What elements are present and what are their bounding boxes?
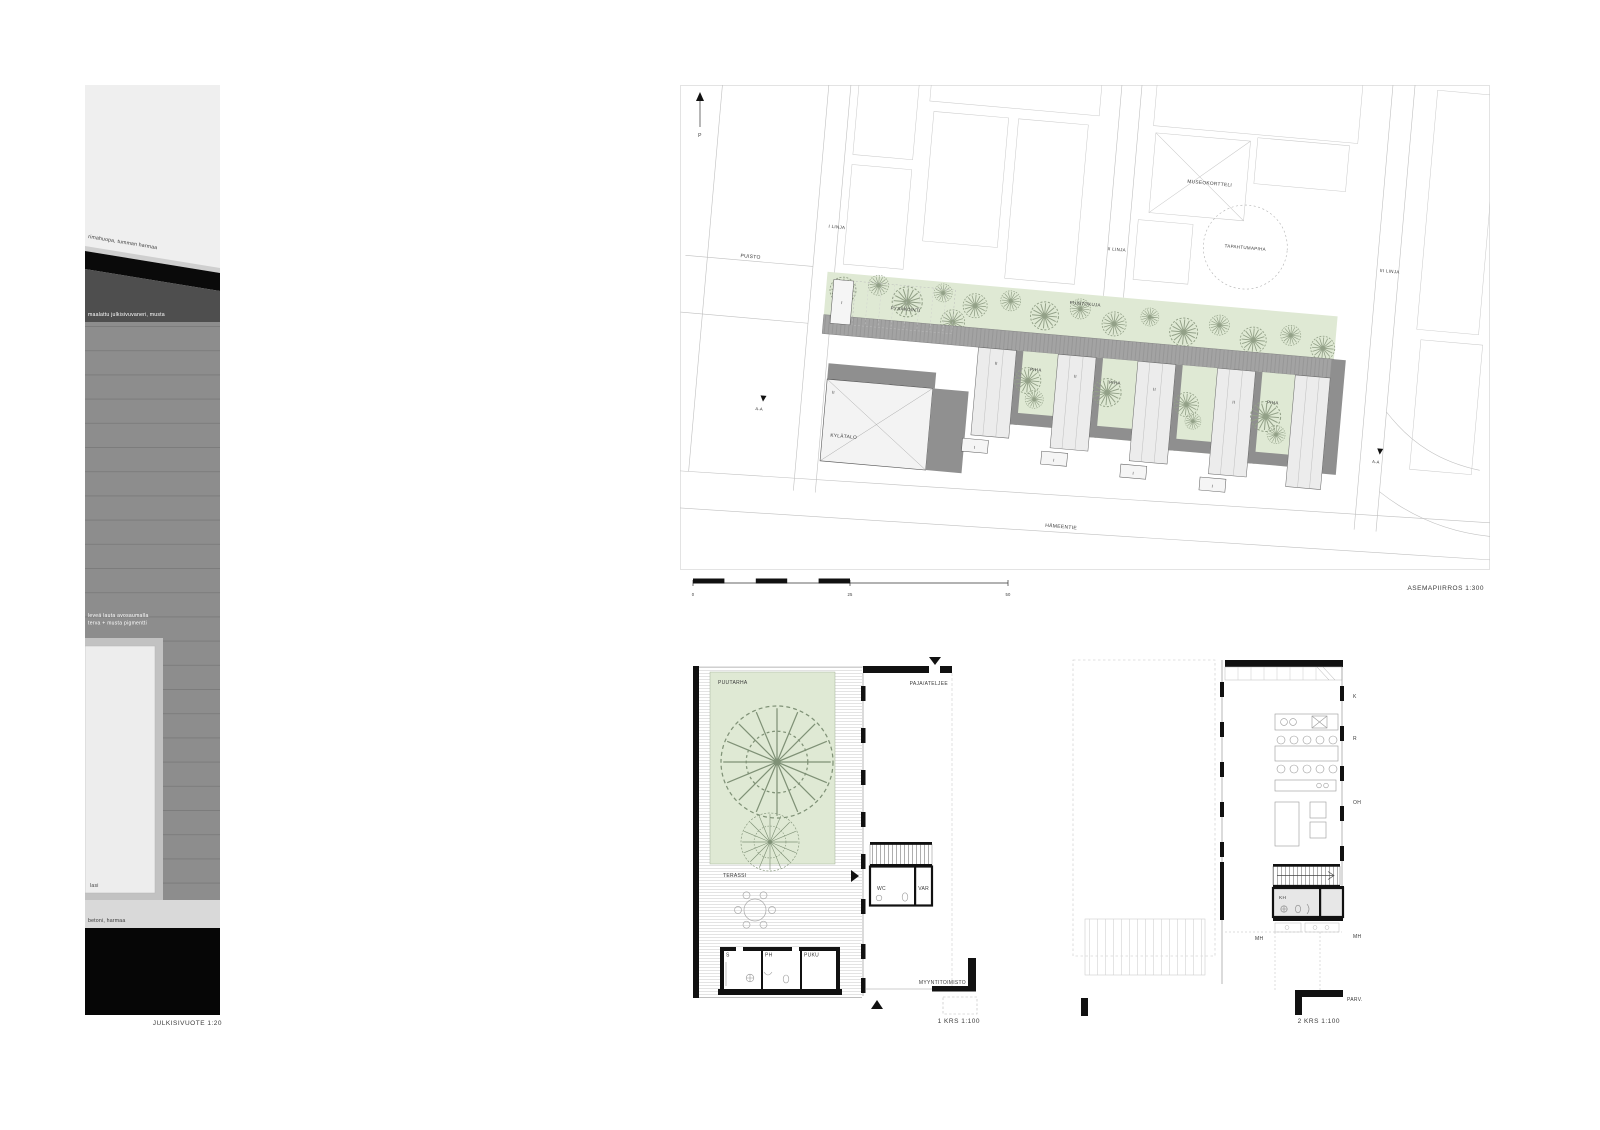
svg-text:A-A: A-A: [1372, 459, 1380, 465]
label-board-2: terva + musta pigmentti: [88, 621, 147, 627]
label-piha: PIHA: [1030, 367, 1042, 373]
facade-window-glass: [85, 646, 155, 893]
dwelling-strip: KH MH: [1225, 660, 1344, 1015]
label-piha: PIHA: [1109, 380, 1121, 386]
sales-office-corner: MYYNTITOIMISTO: [866, 958, 977, 1014]
label-oh: OH: [1353, 800, 1361, 806]
label-k: K: [1353, 694, 1357, 700]
stair: [870, 842, 932, 867]
label-var: VAR: [918, 886, 929, 892]
scale-zero: 0: [692, 592, 695, 597]
north-arrow-icon: P: [696, 92, 704, 139]
label-kh: KH: [1279, 895, 1286, 901]
label-piha: PIHA: [1267, 400, 1279, 406]
void-open-below: [1073, 660, 1215, 956]
north-wall: [1225, 660, 1343, 667]
label-wc: WC: [877, 886, 886, 892]
central-glazed-wall: [1220, 660, 1224, 984]
kylatalo-building: II KYLÄTALO: [820, 363, 970, 473]
scale-bar: 0 25 50: [692, 579, 1011, 598]
entrance-arrow-icon: [929, 657, 941, 665]
living-room: [1275, 802, 1326, 846]
label-sauna: S: [726, 953, 730, 959]
label-puisto: PUISTO: [740, 253, 761, 261]
label-iii-linja: III LINJA: [1380, 268, 1400, 275]
sauna-block: S PH PUKU: [718, 947, 842, 995]
north-label: P: [698, 133, 702, 139]
facade-detail-drawing: rimahuopa, tumman harmaa maalattu julkis…: [85, 85, 220, 1015]
label-hameentie: HÄMEENTIE: [1045, 522, 1078, 532]
facade-layers: [85, 85, 220, 1015]
label-museokortteli: MUSEOKORTTELI: [1187, 179, 1232, 189]
label-puutarha: PUUTARHA: [718, 680, 748, 686]
floor-plan-2-caption: 2 KRS 1:100: [1240, 1018, 1340, 1025]
kitchen: [1275, 714, 1338, 730]
storey-mark: II: [832, 390, 835, 395]
trellis: [1085, 919, 1205, 975]
section-marker: A-A: [1372, 448, 1383, 465]
label-ph: PH: [765, 953, 773, 959]
workshop-building: PAJA/ATELJEE WC VAR MYYNTITOIMISTO: [851, 657, 977, 1014]
storey-mark: II: [1153, 387, 1156, 392]
label-ii-linja: II LINJA: [1107, 246, 1126, 253]
canopy-dashed: [943, 997, 977, 1014]
wc-var-block: WC VAR: [870, 867, 932, 906]
site-plan-content: I PYSÄKÖINTI II KYLÄTALO: [680, 85, 1490, 581]
label-r: R: [1353, 736, 1357, 742]
label-tapahtumapiha: TAPAHTUMAPIHA: [1224, 243, 1266, 252]
section-marker: A-A: [755, 395, 766, 412]
window-band: [1225, 667, 1342, 680]
scale-end: 50: [1005, 592, 1011, 597]
island-counter: [1275, 780, 1336, 791]
label-i-linja: I LINJA: [828, 224, 845, 230]
garden: PUUTARHA: [710, 672, 835, 871]
facade-caption: JULKISIVUOTE 1:20: [72, 1020, 222, 1027]
west-wall: [693, 666, 699, 998]
balcony-corner: [1295, 990, 1343, 1015]
label-mh: MH: [1353, 934, 1361, 940]
floor-plan-1-caption: 1 KRS 1:100: [880, 1018, 980, 1025]
balcony-wall: [1081, 998, 1088, 1016]
room-code-labels: K R OH MH PARV.: [1347, 694, 1363, 1003]
label-glass: lasi: [90, 883, 99, 889]
label-concrete: betoni, harmaa: [88, 918, 125, 924]
label-parv: PARV.: [1347, 997, 1363, 1003]
scale-mid: 25: [847, 592, 853, 597]
east-wall: [1340, 667, 1344, 920]
floor-plan-1-drawing: PUUTARHA TERASSI PAJA/ATELJEE: [680, 652, 1020, 1027]
storey-mark: II: [995, 361, 998, 366]
label-mh: MH: [1255, 936, 1263, 942]
bathroom-block: KH: [1273, 888, 1343, 932]
floor-plan-2-drawing: KH MH: [1065, 652, 1375, 1027]
label-plywood: maalattu julkisivuvaneri, musta: [88, 312, 165, 318]
label-terassi: TERASSI: [723, 873, 747, 879]
label-board-1: leveä lauta avosaumalla: [88, 613, 149, 619]
label-myyntitoimisto: MYYNTITOIMISTO: [919, 980, 966, 986]
storey-mark: II: [1232, 400, 1235, 405]
facade-base-block: [85, 928, 220, 1015]
entrance-arrow-icon: [871, 1000, 883, 1009]
drawing-sheet: rimahuopa, tumman harmaa maalattu julkis…: [0, 0, 1600, 1130]
label-puku: PUKU: [804, 953, 819, 959]
storey-mark: II: [1074, 374, 1077, 379]
bedroom-partitions: [1225, 932, 1342, 990]
site-plan-drawing: P: [680, 85, 1490, 600]
site-plan-caption: ASEMAPIIRROS 1:300: [1284, 585, 1484, 592]
svg-text:A-A: A-A: [755, 406, 763, 412]
label-paja: PAJA/ATELJEE: [910, 681, 949, 687]
dining: [1275, 736, 1338, 773]
stair: [1273, 864, 1340, 887]
